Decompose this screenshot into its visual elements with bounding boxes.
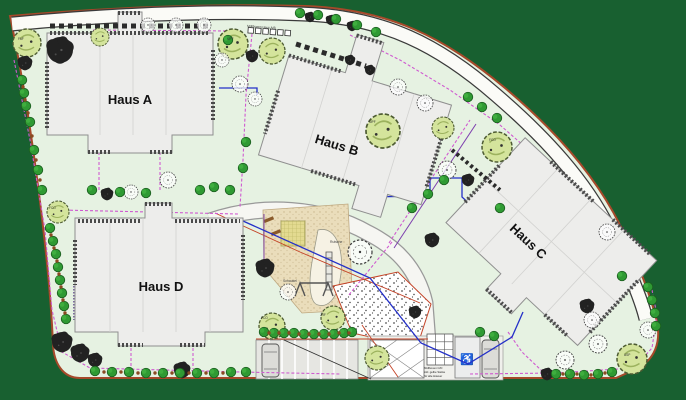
site-plan-page: ♿ (0, 0, 686, 400)
plant-dot-icon (55, 259, 58, 262)
shrub-icon (21, 101, 31, 111)
shrub-icon (331, 14, 341, 24)
plant-code-label: JRF (320, 313, 326, 317)
shrub-icon (25, 117, 35, 127)
plant-dot-icon (30, 134, 33, 137)
shrub-icon (45, 223, 55, 233)
tree-outline-icon (417, 95, 433, 111)
shrub-icon (29, 145, 39, 155)
shrub-icon (607, 367, 617, 377)
tree-outline-icon (599, 224, 615, 240)
shrub-icon (241, 137, 251, 147)
shrub-icon (59, 301, 69, 311)
plant-dot-icon (575, 372, 578, 375)
shrub-icon (33, 165, 43, 175)
plant-dot-icon (307, 332, 310, 335)
shrub-icon (107, 367, 117, 377)
shrub-icon (209, 182, 219, 192)
building-haus-d: Haus D (75, 203, 243, 346)
sandbox (281, 221, 305, 246)
tree-canopy-icon (482, 132, 512, 162)
shrub-icon (61, 314, 71, 324)
shrub-icon (352, 20, 362, 30)
plant-dot-icon (221, 371, 224, 374)
tree-outline-icon (589, 335, 607, 353)
car-symbol (482, 340, 499, 378)
plant-dot-icon (136, 371, 139, 374)
plant-dot-icon (267, 331, 270, 334)
tree-canopy-icon (321, 306, 345, 330)
shrub-icon (195, 185, 205, 195)
haus-a-label: Haus A (108, 92, 153, 107)
shrub-icon (295, 8, 305, 18)
tree-canopy-icon (432, 117, 454, 139)
plant-dot-icon (204, 371, 207, 374)
tree-canopy-icon (365, 346, 389, 370)
shrub-icon (57, 288, 67, 298)
plant-dot-icon (21, 85, 24, 88)
shrub-icon (192, 368, 202, 378)
tree-canopy-icon (47, 201, 69, 223)
plant-code-label: MPF (227, 37, 234, 41)
shrub-icon (313, 10, 323, 20)
shrub-icon (238, 163, 248, 173)
car-symbol (262, 344, 279, 377)
shrub-icon (551, 369, 561, 379)
tree-outline-icon (390, 79, 406, 95)
tree-outline-icon (584, 312, 600, 328)
plant-dot-icon (23, 98, 26, 101)
site-plan-svg: ♿ (0, 0, 686, 400)
tree-outline-icon (169, 18, 183, 32)
shrub-icon (617, 271, 627, 281)
plant-dot-icon (187, 371, 190, 374)
plant-dot-icon (170, 371, 173, 374)
plant-code-label: FCO (49, 206, 56, 210)
shrub-icon (53, 262, 63, 272)
shrub-icon (55, 275, 65, 285)
tree-outline-icon (232, 76, 248, 92)
shrub-icon (115, 187, 125, 197)
shrub-icon (175, 368, 185, 378)
shrub-icon (423, 189, 433, 199)
plant-dot-icon (57, 272, 60, 275)
shrub-icon (141, 368, 151, 378)
plant-dot-icon (277, 331, 280, 334)
shrub-icon (141, 188, 151, 198)
plant-dot-icon (34, 158, 37, 161)
shrub-icon (643, 282, 653, 292)
shrub-icon (209, 368, 219, 378)
shrub-icon (17, 75, 27, 85)
shrub-icon (87, 185, 97, 195)
shrub-icon (48, 236, 58, 246)
swing-label: Schaukel (283, 279, 297, 283)
shrub-icon (51, 249, 61, 259)
shrub-icon (225, 185, 235, 195)
shrub-icon (489, 331, 499, 341)
tree-outline-icon (124, 185, 138, 199)
plant-code-label: MPF (369, 120, 376, 124)
tree-canopy-icon (617, 344, 647, 374)
tree-outline-icon (248, 92, 262, 106)
tree-outline-icon (197, 18, 211, 32)
shrub-icon (593, 369, 603, 379)
plant-code-label: FCO (489, 138, 496, 142)
shrub-icon (407, 203, 417, 213)
tree-canopy-icon (91, 28, 109, 46)
bins-note-line3: für alle Häuser (424, 374, 442, 378)
plant-dot-icon (327, 332, 330, 335)
plant-dot-icon (119, 370, 122, 373)
plant-dot-icon (38, 178, 41, 181)
tree-outline-icon (160, 172, 176, 188)
plant-dot-icon (52, 246, 55, 249)
tree-outline-icon (141, 18, 155, 32)
shrub-icon (439, 175, 449, 185)
plant-dot-icon (26, 111, 29, 114)
plant-code-label: FAF (18, 37, 24, 41)
plant-dot-icon (59, 285, 62, 288)
plant-dot-icon (102, 370, 105, 373)
tree-outline-icon (556, 351, 574, 369)
shrub-icon (565, 369, 575, 379)
plant-dot-icon (61, 298, 64, 301)
tree-outline-icon (348, 240, 372, 264)
shrub-icon (226, 367, 236, 377)
tree-canopy-icon (259, 38, 285, 64)
shrub-icon (492, 113, 502, 123)
shrub-icon (259, 327, 269, 337)
shrub-icon (37, 185, 47, 195)
plant-code-label: ASP (624, 353, 630, 357)
plant-dot-icon (287, 331, 290, 334)
slide-label: Rutsche (330, 240, 343, 244)
shrub-icon (463, 92, 473, 102)
plant-dot-icon (317, 332, 320, 335)
plant-dot-icon (153, 371, 156, 374)
plant-dot-icon (603, 371, 606, 374)
plant-dot-icon (297, 332, 300, 335)
shrub-icon (651, 321, 661, 331)
plant-dot-icon (561, 372, 564, 375)
plant-code-label: FCO (261, 316, 268, 320)
shrub-icon (90, 366, 100, 376)
shrub-icon (477, 102, 487, 112)
haus-d-label: Haus D (139, 279, 184, 294)
shrub-icon (475, 327, 485, 337)
shrub-icon (495, 203, 505, 213)
plant-dot-icon (589, 373, 592, 376)
shrub-icon (124, 367, 134, 377)
plant-dot-icon (49, 233, 52, 236)
building-haus-a: Haus A (47, 12, 213, 153)
tree-canopy-icon (13, 29, 41, 57)
shrub-icon (579, 370, 589, 380)
tree-outline-icon (280, 284, 296, 300)
shrub-icon (650, 308, 660, 318)
shrub-icon (647, 295, 657, 305)
shrub-icon (158, 368, 168, 378)
plant-dot-icon (337, 331, 340, 334)
tree-outline-icon (215, 53, 229, 67)
shrub-icon (241, 367, 251, 377)
shrub-icon (371, 27, 381, 37)
plant-dot-icon (63, 311, 66, 314)
plant-dot-icon (347, 331, 350, 334)
shrub-icon (19, 88, 29, 98)
